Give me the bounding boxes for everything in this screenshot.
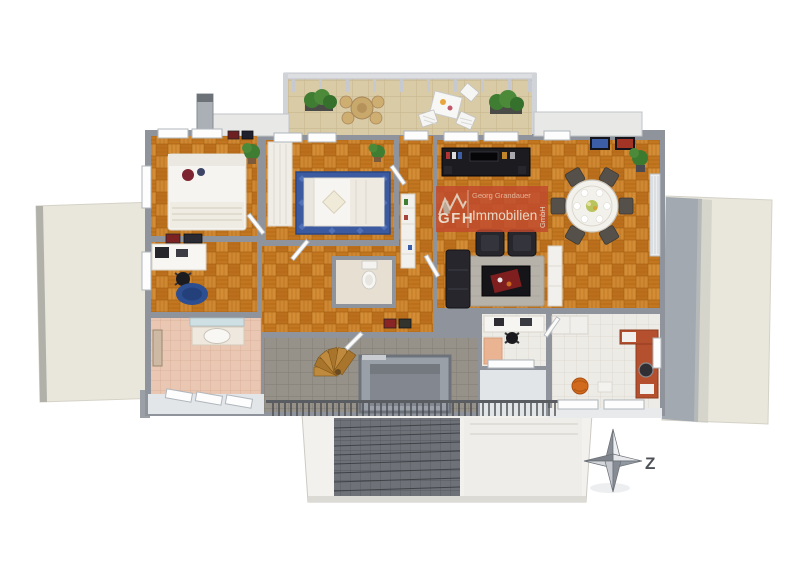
sink-vanity xyxy=(190,318,244,345)
dining-chair xyxy=(619,198,633,214)
balcony-railing xyxy=(284,73,536,79)
window xyxy=(444,132,478,141)
sofa xyxy=(446,250,470,308)
wall-picture-blue xyxy=(590,137,610,150)
monitor xyxy=(176,249,188,257)
window xyxy=(308,133,336,142)
left-roof-terrace xyxy=(36,202,163,402)
desk xyxy=(484,316,544,332)
toilet xyxy=(362,261,377,289)
dining-chair xyxy=(551,198,565,214)
window xyxy=(488,360,534,368)
stair-railing xyxy=(268,403,556,416)
window xyxy=(274,133,302,142)
window xyxy=(142,252,151,290)
kitchen-sink xyxy=(639,363,653,377)
compass-shadow xyxy=(590,483,630,493)
elevator-door xyxy=(362,355,386,360)
office-chair xyxy=(505,332,519,344)
media-shelf-unit xyxy=(442,148,530,176)
watermark-owner: Georg Grandauer xyxy=(472,191,531,200)
mirror xyxy=(190,318,244,326)
watermark: Georg Grandauer GFH Immobilien GmbH xyxy=(436,186,548,232)
balcony xyxy=(283,73,537,135)
tv xyxy=(470,152,498,161)
stool xyxy=(598,382,612,392)
window xyxy=(404,131,428,140)
wc-room xyxy=(334,258,394,306)
window xyxy=(653,338,661,368)
radiator xyxy=(650,174,660,256)
pet-basket xyxy=(572,378,588,394)
corridor-shelf xyxy=(401,194,415,268)
window xyxy=(558,400,598,409)
entrance-roof-slab xyxy=(464,418,582,498)
window xyxy=(484,132,518,141)
printer xyxy=(155,247,169,258)
double-bed-2 xyxy=(304,178,384,226)
window xyxy=(544,131,570,140)
watermark-brand-suffix: Immobilien xyxy=(472,208,537,223)
window xyxy=(192,129,222,138)
window xyxy=(604,400,644,409)
window xyxy=(142,166,151,208)
wall-picture-red xyxy=(615,137,635,150)
sideboard xyxy=(548,246,562,306)
floorplan-render: Georg Grandauer GFH Immobilien GmbH Z xyxy=(0,0,800,565)
double-bed xyxy=(168,154,246,230)
window xyxy=(158,129,188,138)
round-cushion xyxy=(182,169,194,181)
centerpiece xyxy=(586,200,598,212)
entrance-protrusion xyxy=(302,414,592,502)
floorplan-svg: Georg Grandauer GFH Immobilien GmbH Z xyxy=(0,0,800,565)
bathroom-door xyxy=(153,330,162,366)
stair-railing-rail xyxy=(266,400,558,403)
compass-label: Z xyxy=(645,454,655,473)
entrance-stairwell xyxy=(334,418,460,498)
watermark-legal: GmbH xyxy=(538,206,547,228)
right-roof-terrace xyxy=(662,196,772,424)
compass-rose: Z xyxy=(584,429,655,493)
watermark-brand: GFH xyxy=(438,210,474,227)
